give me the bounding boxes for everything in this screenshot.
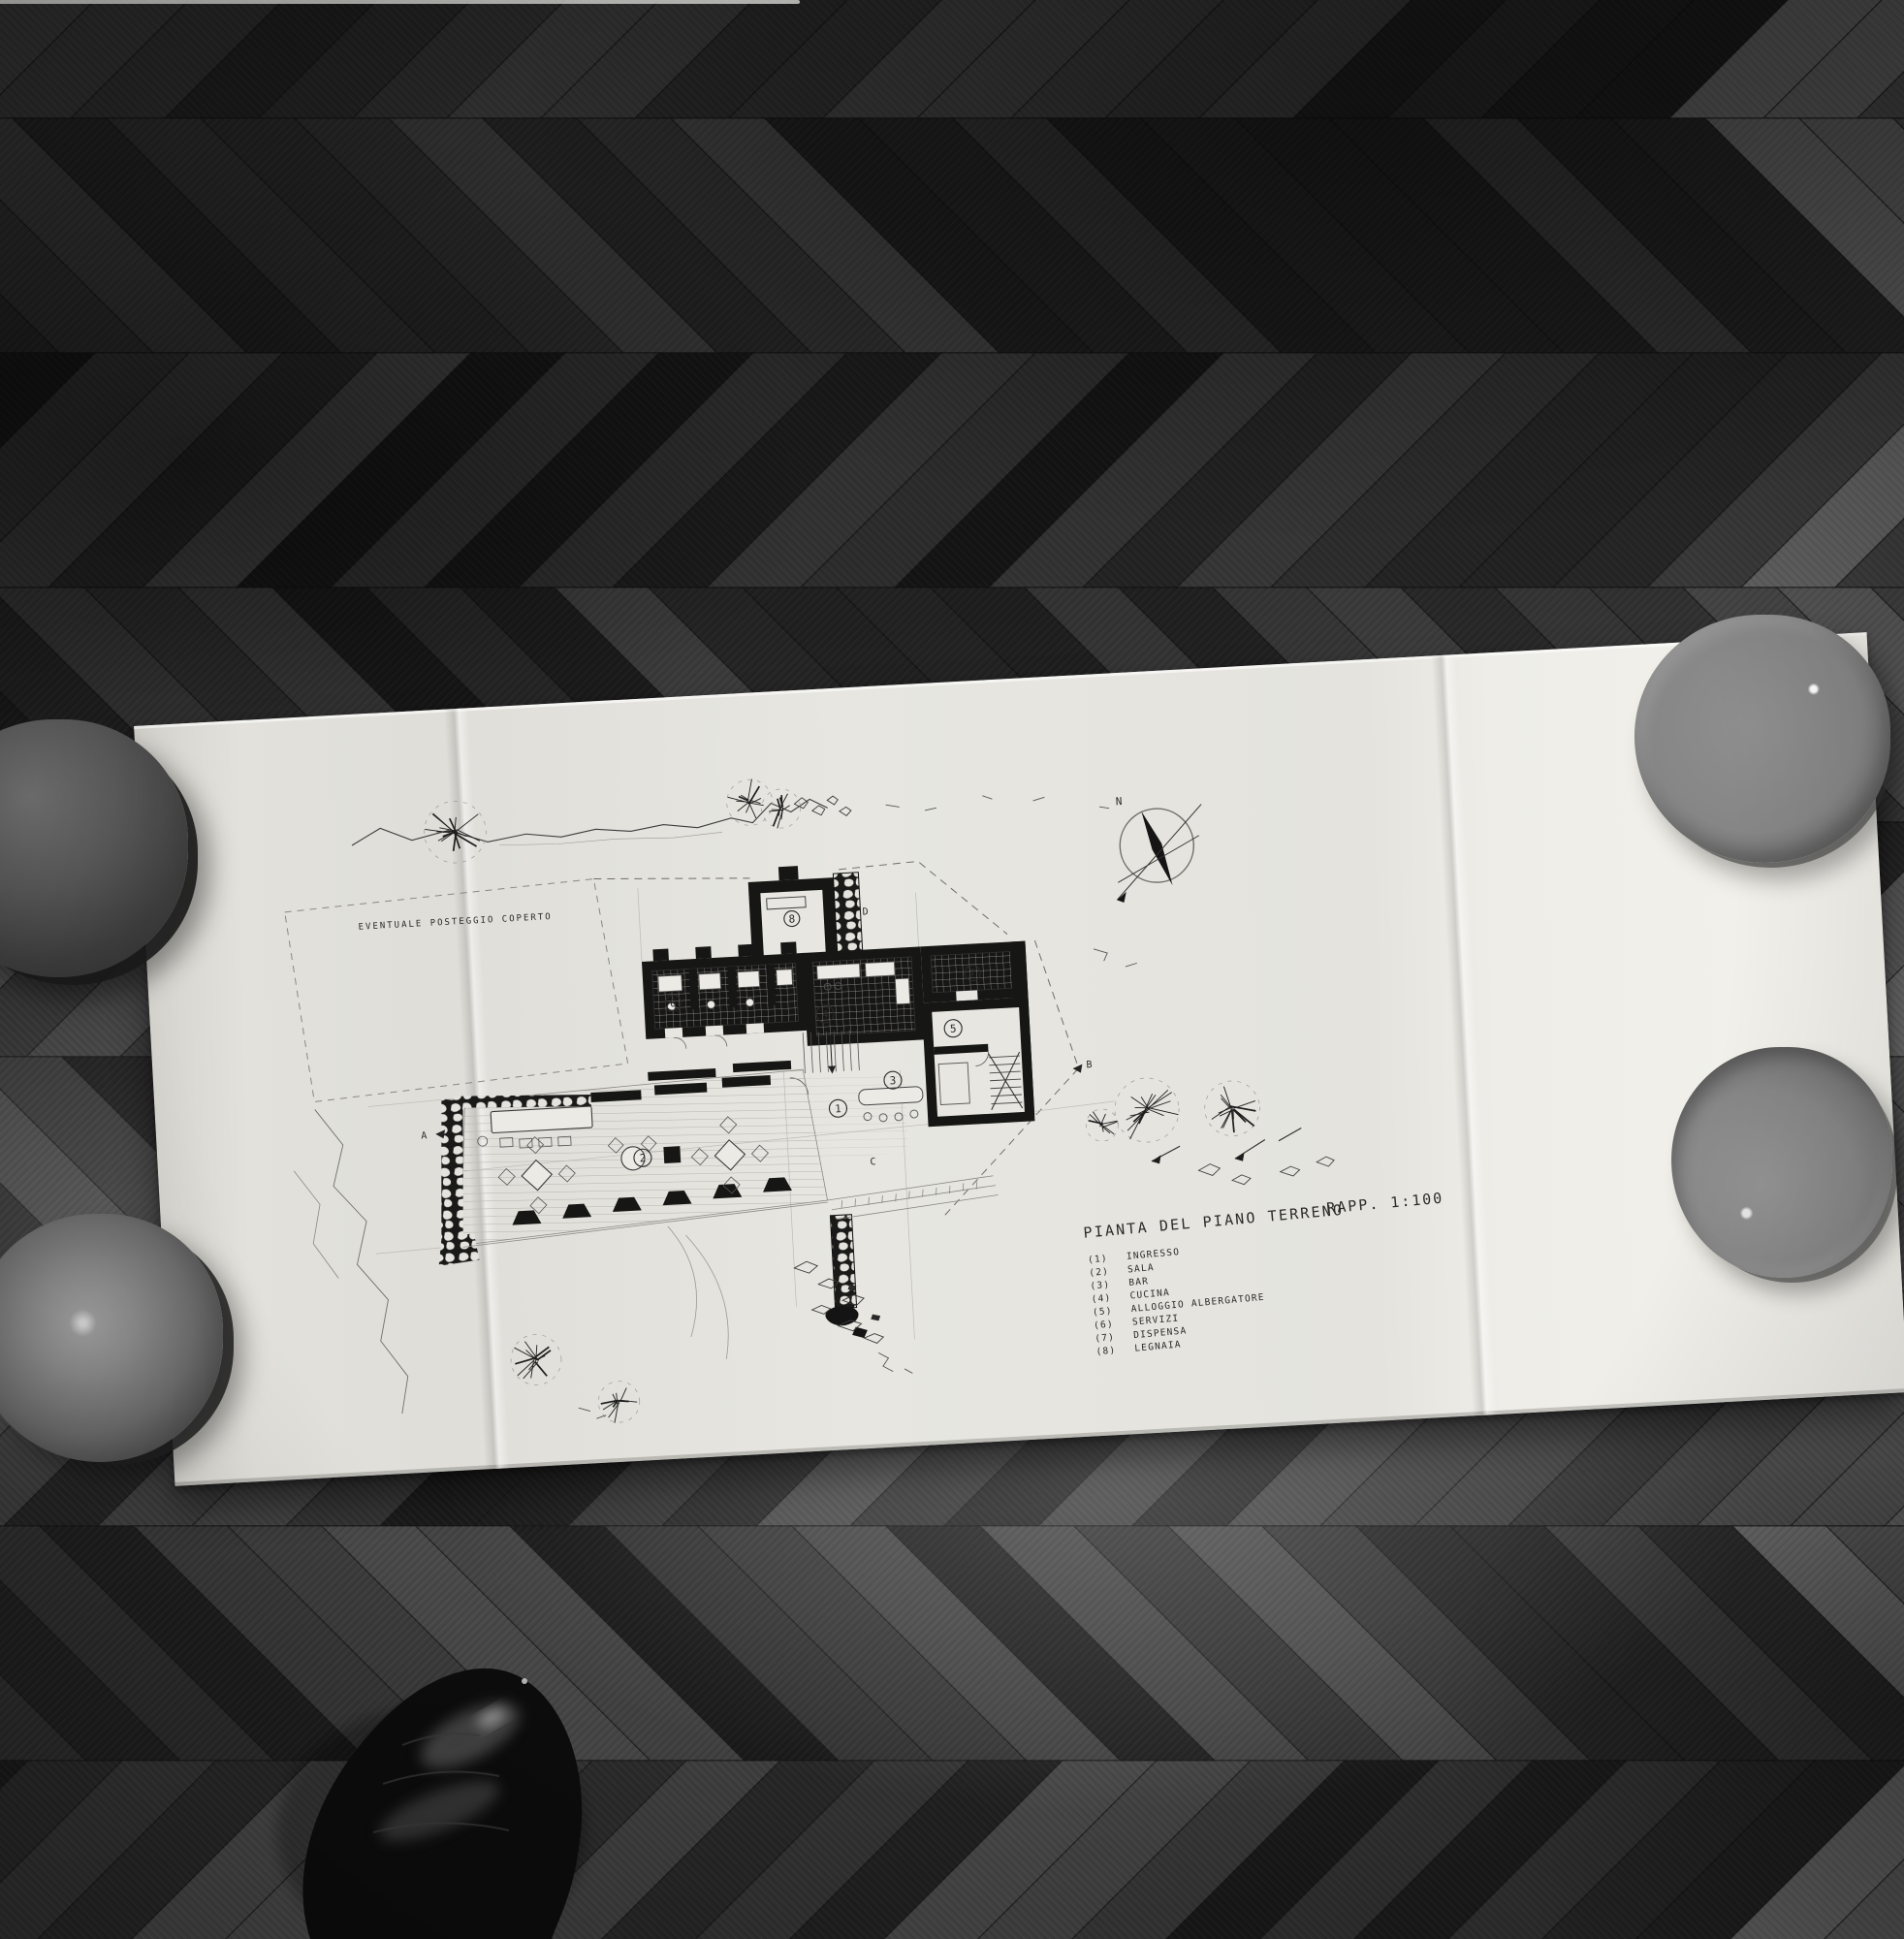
scatter-marks	[885, 789, 1109, 820]
room-number-legnaia: 8	[788, 912, 795, 925]
room-cucina	[803, 946, 926, 1045]
compass-rose: N	[1111, 791, 1206, 904]
tree-sketch	[597, 1381, 641, 1424]
compass-needle	[1141, 810, 1172, 886]
stone-pier-lower	[820, 1214, 868, 1340]
legend-num: (4)	[1091, 1292, 1112, 1305]
shoe	[238, 1638, 625, 1939]
legend-label: BAR	[1128, 1276, 1150, 1288]
column	[663, 1146, 681, 1163]
vegetation-right	[1076, 937, 1335, 1192]
posteggio-label: EVENTUALE POSTEGGIO COPERTO	[358, 912, 553, 933]
tree-sketch	[510, 1333, 563, 1386]
posteggio-area: EVENTUALE POSTEGGIO COPERTO	[284, 877, 629, 1102]
room-number-servizi: 6	[670, 997, 677, 1009]
room-number-ingresso: 1	[835, 1102, 841, 1115]
legend-label: SALA	[1127, 1262, 1156, 1275]
room-number-bar: 3	[889, 1074, 896, 1087]
legend-label: INGRESSO	[1126, 1247, 1180, 1262]
tree-sketch	[1113, 1076, 1181, 1144]
compass-north-label: N	[1115, 795, 1122, 808]
marker-c: C	[870, 1157, 876, 1167]
rock-sketch	[794, 795, 851, 818]
legend-num: (3)	[1090, 1280, 1111, 1292]
legend: (1) INGRESSO (2) SALA (3) BAR (4) CUCINA…	[1088, 1240, 1269, 1358]
terrace-sketch	[827, 1176, 1000, 1220]
legend-label: CUCINA	[1129, 1287, 1170, 1302]
marker-a: A	[421, 1130, 428, 1141]
plan-title: PIANTA DEL PIANO TERRENO	[1083, 1201, 1345, 1242]
bowl-top-right	[1634, 615, 1890, 863]
wing-servizi	[641, 941, 809, 1039]
marker-d: D	[862, 906, 869, 917]
film-edge-artifact	[0, 0, 800, 4]
tree-sketch	[1085, 1108, 1119, 1142]
photo-of-floor-plan-on-parquet: N EVENTUALE POSTEGGIO COPERTO	[0, 0, 1904, 1939]
legend-num: (6)	[1094, 1319, 1115, 1331]
terrain-sketch	[350, 760, 1111, 869]
legend-num: (7)	[1095, 1332, 1116, 1345]
tree-sketch	[423, 800, 488, 865]
legend-label: LEGNAIA	[1134, 1339, 1182, 1353]
room-number-sala: 2	[639, 1152, 646, 1164]
plan-scale: RAPP. 1:100	[1326, 1190, 1444, 1218]
marker-b: B	[1086, 1060, 1093, 1070]
room-number-dispensa: 7	[968, 967, 975, 979]
tree-sketch	[1203, 1079, 1261, 1137]
tree-sketch	[725, 779, 774, 827]
floor-plan-drawing: N EVENTUALE POSTEGGIO COPERTO	[206, 728, 1481, 1473]
title-block: PIANTA DEL PIANO TERRENO RAPP. 1:100 (1)…	[1083, 1190, 1455, 1358]
building-plan	[418, 854, 1046, 1361]
bowl-bottom-right	[1671, 1047, 1892, 1278]
room-alloggio	[922, 997, 1035, 1127]
legend-label: SERVIZI	[1132, 1313, 1180, 1327]
legend-num: (2)	[1089, 1266, 1110, 1279]
legend-num: (1)	[1088, 1254, 1109, 1266]
room-number-cucina: 4	[822, 1008, 830, 1021]
legend-num: (5)	[1092, 1306, 1113, 1319]
legend-num: (8)	[1095, 1345, 1117, 1357]
room-sala	[429, 1068, 830, 1266]
room-number-alloggio: 5	[950, 1023, 957, 1035]
